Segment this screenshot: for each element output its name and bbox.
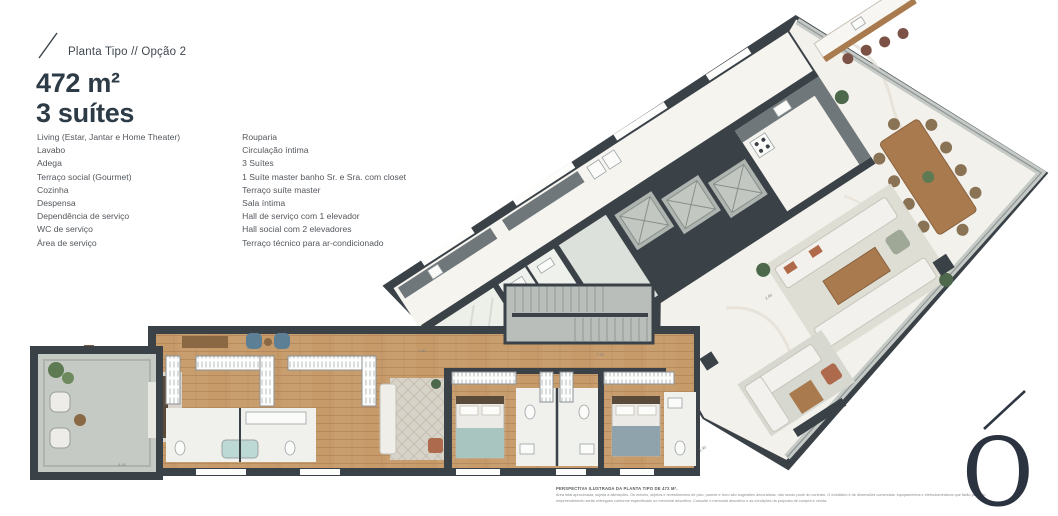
wardrobe xyxy=(166,356,180,404)
list-item: Adega xyxy=(37,157,180,170)
room-list: Living (Estar, Jantar e Home Theater) La… xyxy=(37,131,406,250)
list-item: Lavabo xyxy=(37,144,180,157)
pillow xyxy=(482,406,500,415)
linen-closet xyxy=(560,372,573,402)
bar-stool xyxy=(877,34,892,49)
list-item: Terraço suíte master xyxy=(242,184,406,197)
list-item: Despensa xyxy=(37,197,180,210)
header: Planta Tipo // Opção 2 472 m² 3 suítes xyxy=(36,30,186,128)
logo-letter: O xyxy=(962,426,1034,516)
master-bathroom xyxy=(166,408,316,462)
bar-stool xyxy=(859,43,874,58)
window xyxy=(620,469,654,475)
wardrobe xyxy=(362,356,376,406)
sink-icon xyxy=(668,398,682,408)
brand-logo: O xyxy=(958,386,1048,514)
window xyxy=(300,469,340,475)
suites-title: 3 suítes xyxy=(36,98,186,128)
wardrobe xyxy=(604,372,674,384)
plant-icon xyxy=(431,379,441,389)
terrace-door xyxy=(148,382,156,438)
side-table xyxy=(264,338,272,346)
list-item: Living (Estar, Jantar e Home Theater) xyxy=(37,131,180,144)
suites-wing xyxy=(84,326,700,476)
list-item: Dependência de serviço xyxy=(37,210,180,223)
intimate-living xyxy=(380,378,444,460)
toilet-icon xyxy=(675,441,685,455)
armchair xyxy=(274,333,290,349)
list-item: Área de serviço xyxy=(37,237,180,250)
suite-2-bed xyxy=(456,396,504,458)
disclaimer-body: Área total aproximada, sujeita a alteraç… xyxy=(556,493,988,504)
dimension-label: 4.16 xyxy=(118,462,127,467)
desk xyxy=(182,336,228,348)
toilet-icon xyxy=(525,405,535,419)
list-item: 3 Suítes xyxy=(242,157,406,170)
stair-stringer xyxy=(512,313,648,317)
terrace-chair xyxy=(50,428,70,448)
armchair xyxy=(428,438,443,453)
double-sink-counter xyxy=(246,412,306,424)
bar-stool xyxy=(895,26,910,41)
sofa xyxy=(380,384,396,454)
sink-icon xyxy=(580,444,594,454)
sink-icon xyxy=(520,444,534,454)
toilet-icon xyxy=(175,441,185,455)
room-list-column-2: Rouparia Circulação íntima 3 Suítes 1 Su… xyxy=(242,131,406,250)
side-table xyxy=(74,414,86,426)
plant-icon xyxy=(48,362,64,378)
slash-icon xyxy=(36,30,60,60)
room-list-column-1: Living (Estar, Jantar e Home Theater) La… xyxy=(37,131,180,250)
list-item: 1 Suíte master banho Sr. e Sra. com clos… xyxy=(242,171,406,184)
list-item: Sala íntima xyxy=(242,197,406,210)
pillow xyxy=(460,406,478,415)
floor-plan-sheet: Planta Tipo // Opção 2 472 m² 3 suítes L… xyxy=(0,0,1058,516)
window xyxy=(456,469,500,475)
master-terrace xyxy=(30,346,163,480)
bed-throw xyxy=(456,428,504,458)
plan-kicker: Planta Tipo // Opção 2 xyxy=(68,46,186,60)
list-item: Terraço técnico para ar-condicionado xyxy=(242,237,406,250)
dimension-label: 7.76 xyxy=(596,352,605,357)
toilet-icon xyxy=(579,405,589,419)
list-item: Hall social com 2 elevadores xyxy=(242,223,406,236)
dimension-label: 1.40 xyxy=(418,348,427,353)
area-title: 472 m² xyxy=(36,68,186,98)
terrace-chair xyxy=(50,392,70,412)
wardrobe xyxy=(452,372,516,384)
list-item: Hall de serviço com 1 elevador xyxy=(242,210,406,223)
list-item: Rouparia xyxy=(242,131,406,144)
list-item: WC de serviço xyxy=(37,223,180,236)
disclaimer-title: PERSPECTIVA ILUSTRADA DA PLANTA TIPO DE … xyxy=(556,486,988,491)
armchair xyxy=(246,333,262,349)
window xyxy=(556,469,586,475)
plant-icon xyxy=(62,372,74,384)
headboard xyxy=(612,396,660,404)
suite-3-bed xyxy=(612,396,660,456)
list-item: Terraço social (Gourmet) xyxy=(37,171,180,184)
list-item: Circulação íntima xyxy=(242,144,406,157)
stairs xyxy=(505,285,653,343)
window xyxy=(196,469,246,475)
headboard xyxy=(456,396,504,404)
linen-closet xyxy=(540,372,553,402)
footer-disclaimer: PERSPECTIVA ILUSTRADA DA PLANTA TIPO DE … xyxy=(556,486,988,504)
toilet-icon xyxy=(285,441,295,455)
pillow xyxy=(616,406,634,415)
wardrobe xyxy=(260,356,274,406)
bed-throw xyxy=(612,426,660,456)
list-item: Cozinha xyxy=(37,184,180,197)
pillow xyxy=(638,406,656,415)
